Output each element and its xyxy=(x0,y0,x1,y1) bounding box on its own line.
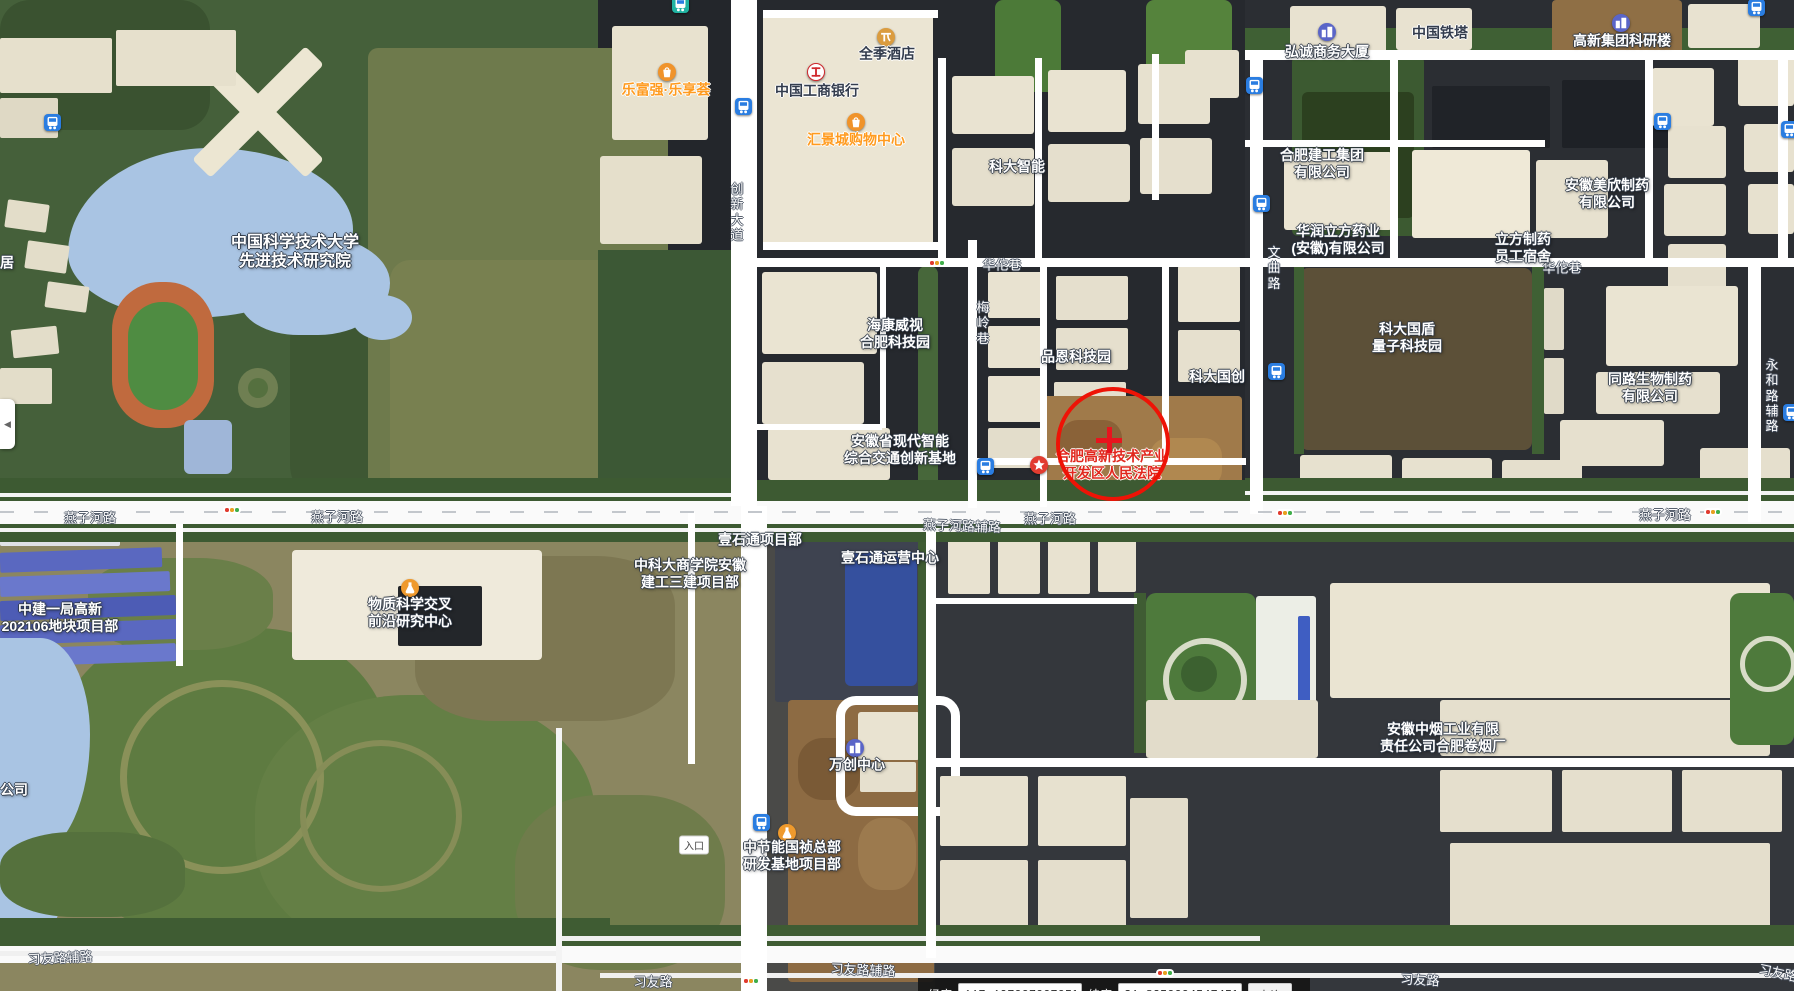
building xyxy=(1664,184,1726,236)
road-dashes xyxy=(0,511,1794,513)
bus-icon xyxy=(1748,0,1765,16)
road-path xyxy=(556,728,562,991)
building-icon[interactable] xyxy=(1612,14,1630,32)
stadium-field xyxy=(128,302,198,410)
building xyxy=(1130,798,1188,918)
bus-icon xyxy=(753,814,770,831)
road-label: 习友路 xyxy=(1400,968,1440,989)
road-service xyxy=(560,936,1260,941)
road-label: 创新大道 xyxy=(730,181,744,242)
poi-label-tonglu-bio[interactable]: 同路生物制药有限公司 xyxy=(1608,371,1692,405)
bus-icon xyxy=(1654,113,1671,130)
traffic-light-icon xyxy=(928,259,946,267)
building xyxy=(1440,770,1552,832)
coordinate-query-bar: 经度 纬度 查询 xyxy=(918,978,1310,991)
poi-label-cecep-project[interactable]: 中节能国祯总部研发基地项目部 xyxy=(743,839,841,873)
latitude-input[interactable] xyxy=(1118,983,1242,991)
road-label: 燕子河路辅路 xyxy=(923,514,1002,536)
poi-label-pinen-techpark[interactable]: 品恩科技园 xyxy=(1041,349,1111,366)
building xyxy=(1544,358,1564,414)
road-minor xyxy=(1645,55,1653,265)
building xyxy=(24,240,69,274)
bus-stop-icon[interactable] xyxy=(753,814,771,832)
bus-stop-icon[interactable] xyxy=(1783,404,1794,422)
hotel-icon[interactable] xyxy=(877,28,895,46)
poi-label-guodun-quantum[interactable]: 科大国盾量子科技园 xyxy=(1372,321,1442,355)
poi-label-china-tower[interactable]: 中国铁塔 xyxy=(1412,25,1468,42)
longitude-label: 经度 xyxy=(928,983,952,991)
building xyxy=(1038,776,1126,846)
road-minor xyxy=(176,524,183,666)
building xyxy=(940,776,1028,846)
building xyxy=(1668,126,1726,178)
latitude-label: 纬度 xyxy=(1088,983,1112,991)
annotation-circle xyxy=(1056,387,1170,501)
road-label: 永和路辅路 xyxy=(1765,358,1779,435)
poi-label-partial-label-gongsi[interactable]: 公司 xyxy=(0,782,28,799)
blue-tarp xyxy=(845,552,917,686)
poi-label-wanchuang-center[interactable]: 万创中心 xyxy=(829,757,885,774)
traffic-light-icon xyxy=(742,977,760,985)
building xyxy=(1048,144,1130,202)
building xyxy=(600,156,702,244)
pond xyxy=(352,295,412,340)
bus-icon xyxy=(1246,77,1263,94)
entrance-badge: 入口 xyxy=(679,836,709,855)
building xyxy=(988,272,1046,318)
road-chuangxin-n xyxy=(731,0,757,506)
poi-label-zhongjian-project[interactable]: 中建一局高新202106地块项目部 xyxy=(2,601,119,635)
poi-label-hefei-construction[interactable]: 合肥建工集团有限公司 xyxy=(1280,147,1364,181)
building xyxy=(1140,138,1212,194)
empty-lot xyxy=(1300,268,1532,450)
road-service xyxy=(935,528,1794,532)
dark-roof xyxy=(1432,86,1550,148)
map-canvas[interactable]: 中国科学技术大学先进技术研究院乐富强·乐享荟全季酒店中国工商银行汇景城购物中心科… xyxy=(0,0,1794,991)
tree-strip xyxy=(748,480,1245,502)
bus-stop-icon[interactable] xyxy=(1268,363,1286,381)
shopping-bag-icon[interactable] xyxy=(847,113,865,131)
poi-label-material-science-center[interactable]: 物质科学交叉前沿研究中心 xyxy=(368,596,452,630)
poi-label-huarun-pharma[interactable]: 华润立方药业(安徽)有限公司 xyxy=(1291,223,1384,257)
garden-ring xyxy=(300,740,462,892)
bus-stop-icon[interactable] xyxy=(672,0,690,14)
poi-label-quanji-hotel[interactable]: 全季酒店 xyxy=(859,46,915,63)
collapse-arrow-icon: ◀ xyxy=(4,419,11,430)
longitude-input[interactable] xyxy=(958,983,1082,991)
building xyxy=(4,199,49,233)
tree-strip xyxy=(1532,262,1544,454)
road-label: 燕子河路 xyxy=(64,508,116,527)
poi-label-yishitong-project[interactable]: 壹石通项目部 xyxy=(718,532,802,549)
road-label: 习友路辅路 xyxy=(27,946,93,968)
road-minor xyxy=(763,242,938,250)
plaza-core xyxy=(248,378,268,398)
poi-label-icbc-bank[interactable]: 中国工商银行 xyxy=(775,83,859,100)
poi-label-yishitong-center[interactable]: 壹石通运营中心 xyxy=(841,550,939,567)
building xyxy=(0,38,112,93)
road-minor xyxy=(1390,58,1398,258)
road-yonghe xyxy=(1748,262,1761,522)
bank-icon xyxy=(807,63,825,81)
traffic-light-icon xyxy=(223,506,241,514)
road-minor xyxy=(763,10,938,18)
poi-label-lifang-dorm[interactable]: 立方制药员工宿舍 xyxy=(1495,231,1551,265)
tree-strip xyxy=(0,524,1794,542)
building xyxy=(1178,266,1240,322)
poi-label-ustc-bschool-project[interactable]: 中科大商学院安徽建工三建项目部 xyxy=(634,557,746,591)
bus-icon xyxy=(44,114,61,131)
poi-label-keda-guochuang[interactable]: 科大国创 xyxy=(1189,369,1245,386)
road-minor xyxy=(935,758,1794,767)
building xyxy=(952,148,1034,206)
flask-icon xyxy=(401,579,419,597)
park-ring xyxy=(1740,636,1794,692)
building-icon[interactable] xyxy=(1318,23,1336,41)
query-button[interactable]: 查询 xyxy=(1248,983,1292,991)
shopping-bag-icon xyxy=(658,63,676,81)
poi-label-lefuqiang-plaza[interactable]: 乐富强·乐享荟 xyxy=(622,82,711,99)
bank-icon[interactable] xyxy=(807,63,825,81)
road-label: 梅岭巷 xyxy=(976,300,990,346)
bus-stop-icon[interactable] xyxy=(44,114,62,132)
building xyxy=(952,76,1034,134)
building xyxy=(1412,150,1530,238)
court-star-icon xyxy=(1030,456,1048,474)
road-label: 燕子河路 xyxy=(1024,509,1076,528)
poi-label-hikvision-park[interactable]: 海康威视合肥科技园 xyxy=(860,317,930,351)
tree-strip xyxy=(1245,478,1794,502)
bus-icon xyxy=(735,98,752,115)
bus-stop-icon[interactable] xyxy=(1781,121,1794,139)
road-wenqu xyxy=(1250,56,1263,514)
building xyxy=(1606,286,1738,366)
bus-icon xyxy=(1781,121,1794,138)
building xyxy=(1048,70,1126,132)
poi-label-transport-base[interactable]: 安徽省现代智能综合交通创新基地 xyxy=(844,433,956,467)
road-label: 习友路辅路 xyxy=(830,958,896,979)
shopping-bag-icon xyxy=(847,113,865,131)
factory-slab xyxy=(1146,700,1318,758)
building xyxy=(1185,50,1239,98)
bus-stop-icon[interactable] xyxy=(1748,0,1766,17)
road-service xyxy=(1245,491,1794,495)
poi-label-keda-intelligent[interactable]: 科大智能 xyxy=(989,159,1045,176)
building-icon xyxy=(1612,14,1630,32)
poi-label-gaoxin-research[interactable]: 高新集团科研楼 xyxy=(1573,33,1671,50)
tree-strip xyxy=(1134,593,1146,753)
road-meiling xyxy=(968,240,977,508)
building xyxy=(1056,276,1128,320)
bus-icon xyxy=(977,458,994,475)
building-icon xyxy=(1318,23,1336,41)
building xyxy=(11,326,60,359)
tree-strip xyxy=(598,250,738,510)
park-core xyxy=(1181,656,1217,692)
poi-label-meixin-pharma[interactable]: 安徽美欣制药有限公司 xyxy=(1565,177,1649,211)
bus-stop-icon[interactable] xyxy=(1654,113,1672,131)
road-minor xyxy=(938,58,946,262)
tree-strip xyxy=(0,478,742,502)
building xyxy=(988,326,1046,368)
bus-stop-icon[interactable] xyxy=(977,458,995,476)
building xyxy=(1668,244,1726,290)
poi-label-huijing-mall[interactable]: 汇景城购物中心 xyxy=(807,132,905,149)
traffic-light-icon xyxy=(1276,509,1294,517)
tree-strip xyxy=(0,918,610,948)
tree-strip xyxy=(1294,262,1304,454)
road-label: 华佗巷 xyxy=(982,255,1021,274)
poi-label-tobacco-factory[interactable]: 安徽中烟工业有限责任公司合肥卷烟厂 xyxy=(1380,721,1506,755)
factory-slab xyxy=(1330,583,1770,698)
hotel-icon xyxy=(877,28,895,46)
traffic-light-icon xyxy=(1704,508,1722,516)
building xyxy=(1544,288,1564,350)
traffic-light-icon xyxy=(1156,969,1174,977)
building xyxy=(988,376,1046,422)
flask-icon[interactable] xyxy=(401,579,419,597)
bus-teal-icon xyxy=(672,0,689,13)
bus-icon xyxy=(1253,195,1270,212)
court-star-icon[interactable] xyxy=(1030,456,1048,474)
road-label: 习友路 xyxy=(633,972,672,991)
bus-icon xyxy=(1783,404,1794,421)
road-minor xyxy=(750,424,882,430)
building-icon xyxy=(846,739,864,757)
poi-label-ustc-institute[interactable]: 中国科学技术大学先进技术研究院 xyxy=(231,233,359,271)
road-minor xyxy=(926,520,936,958)
road-service xyxy=(0,493,740,497)
tree-strip xyxy=(0,832,185,917)
building xyxy=(858,712,920,760)
road-path xyxy=(688,512,695,764)
bus-stop-icon[interactable] xyxy=(1246,77,1264,95)
road-minor xyxy=(1152,54,1159,200)
road-label: 文曲路 xyxy=(1267,245,1281,291)
road-minor xyxy=(935,598,1137,604)
poi-label-hongcheng-tower[interactable]: 弘诚商务大厦 xyxy=(1285,44,1369,61)
building xyxy=(116,30,236,86)
shopping-bag-icon[interactable] xyxy=(658,63,676,81)
construction-dirt xyxy=(858,818,916,890)
pool-area xyxy=(184,420,232,474)
bus-icon xyxy=(1268,363,1285,380)
annotation-crosshair xyxy=(1107,427,1112,453)
building-icon[interactable] xyxy=(846,739,864,757)
road-minor xyxy=(1778,54,1788,264)
panel-collapse-tab[interactable]: ◀ xyxy=(0,399,15,449)
road-label: 燕子河路 xyxy=(311,507,363,526)
road-label: 燕子河路 xyxy=(1639,505,1691,524)
building xyxy=(1682,770,1782,832)
bus-stop-icon[interactable] xyxy=(735,98,753,116)
bus-stop-icon[interactable] xyxy=(1253,195,1271,213)
building xyxy=(762,362,864,424)
building xyxy=(1562,770,1672,832)
poi-label-partial-label-ju[interactable]: 居 xyxy=(0,255,14,272)
